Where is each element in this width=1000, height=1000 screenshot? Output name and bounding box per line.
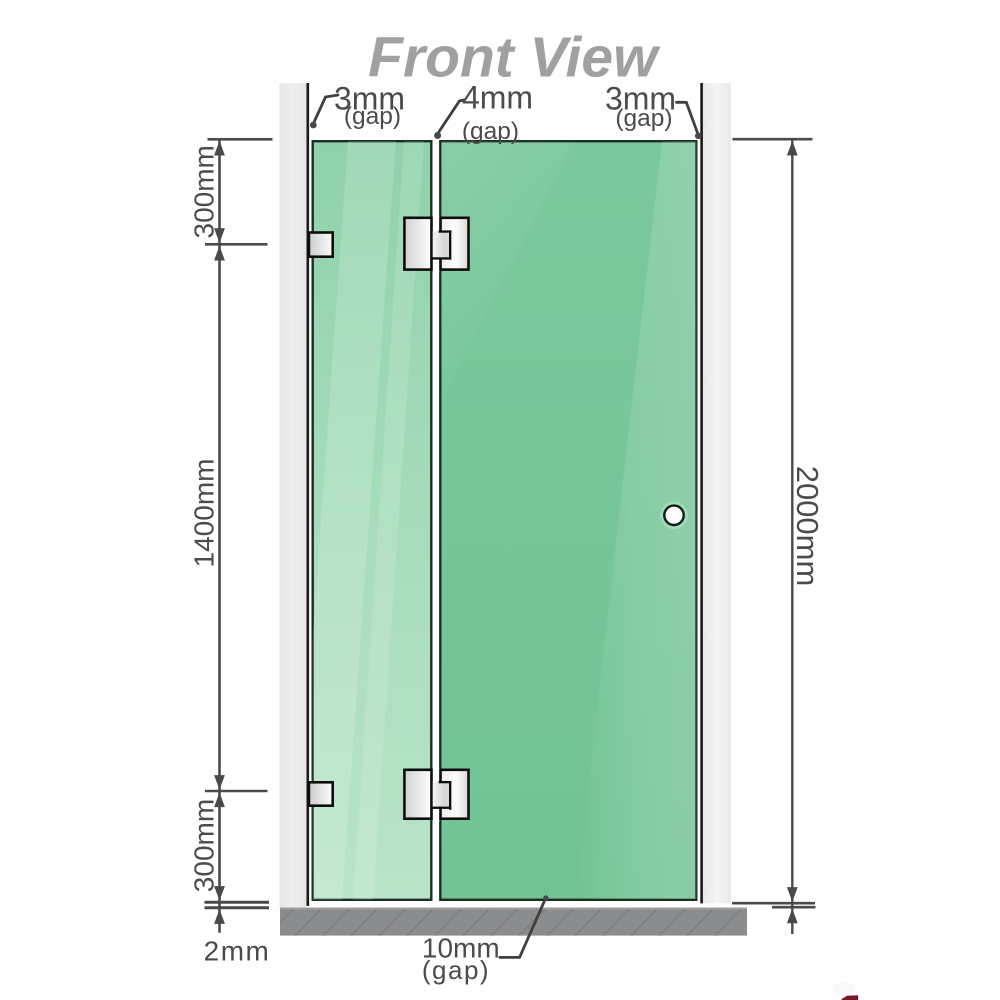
svg-text:(gap): (gap) — [344, 103, 401, 130]
svg-text:300mm: 300mm — [188, 145, 219, 238]
svg-text:(gap): (gap) — [422, 955, 490, 985]
svg-text:1400mm: 1400mm — [188, 459, 219, 568]
svg-text:2000mm: 2000mm — [790, 466, 825, 587]
svg-text:(gap): (gap) — [615, 105, 672, 132]
svg-text:300mm: 300mm — [188, 799, 219, 892]
svg-text:2mm: 2mm — [204, 936, 271, 967]
svg-text:4mm: 4mm — [462, 80, 533, 116]
svg-text:(gap): (gap) — [462, 118, 519, 145]
